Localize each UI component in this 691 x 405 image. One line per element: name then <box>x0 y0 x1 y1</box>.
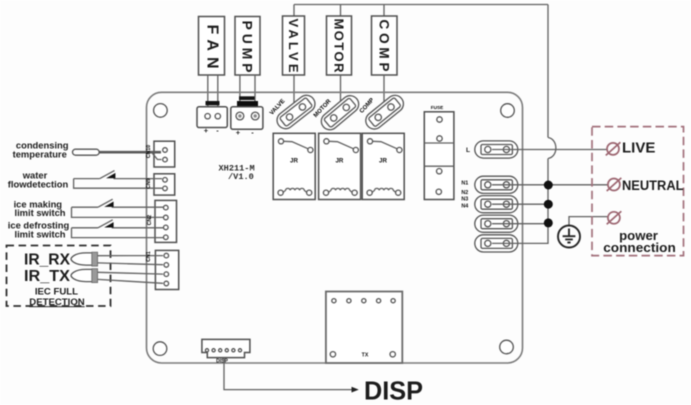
svg-text:MOTOR: MOTOR <box>332 19 347 74</box>
svg-text:flowdetection: flowdetection <box>8 179 69 190</box>
svg-text:JR: JR <box>335 158 343 165</box>
svg-text:/V1.0: /V1.0 <box>228 172 254 182</box>
svg-text:IR_TX: IR_TX <box>24 268 70 285</box>
svg-text:CN9: CN9 <box>146 178 152 188</box>
svg-text:LIVE: LIVE <box>622 139 655 156</box>
svg-text:DETECTION: DETECTION <box>29 297 85 308</box>
svg-text:L: L <box>466 147 470 154</box>
svg-text:N1: N1 <box>461 180 468 186</box>
svg-text:DISP: DISP <box>216 359 228 365</box>
svg-text:connection: connection <box>603 241 676 255</box>
svg-text:CN2: CN2 <box>147 215 153 225</box>
svg-text:N4: N4 <box>461 204 468 210</box>
svg-text:CN10: CN10 <box>146 145 152 158</box>
svg-text:limit switch: limit switch <box>14 229 65 240</box>
svg-text:+: + <box>236 128 241 137</box>
svg-text:FUSE: FUSE <box>431 105 444 110</box>
svg-text:DISP: DISP <box>364 376 423 405</box>
svg-text:+: + <box>204 126 209 135</box>
svg-text:IR_RX: IR_RX <box>24 252 70 269</box>
svg-text:TX: TX <box>362 352 369 358</box>
svg-text:JR: JR <box>379 158 387 165</box>
svg-text:N2: N2 <box>461 190 468 196</box>
svg-text:NEUTRAL: NEUTRAL <box>622 178 684 194</box>
svg-text:N3: N3 <box>461 196 468 202</box>
svg-text:CN1: CN1 <box>146 251 152 261</box>
svg-text:limit switch: limit switch <box>14 207 65 218</box>
svg-text:JR: JR <box>290 158 298 165</box>
svg-text:IEC FULL: IEC FULL <box>35 287 78 298</box>
svg-text:FAN: FAN <box>204 25 221 69</box>
svg-text:temperature: temperature <box>13 148 67 159</box>
